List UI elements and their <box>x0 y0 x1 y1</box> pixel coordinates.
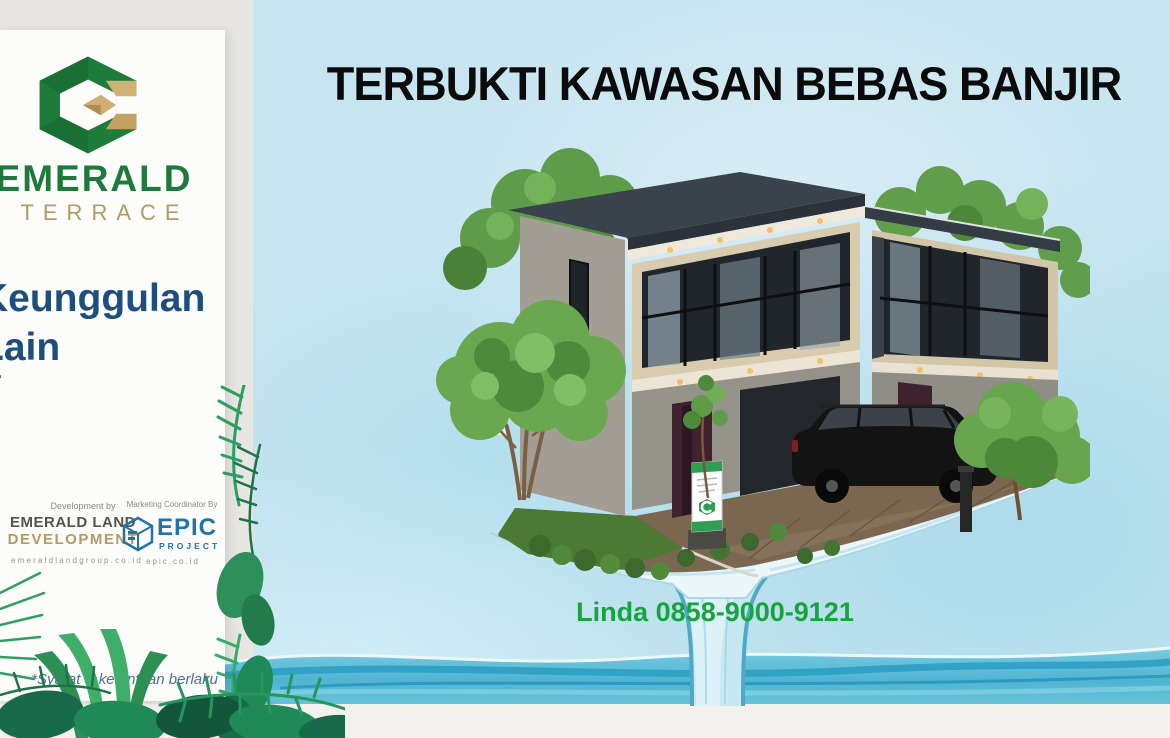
project-signboard <box>688 461 726 550</box>
sidebar-heading-line2: Lain <box>0 324 215 373</box>
marketing-brand: EPIC <box>157 514 217 542</box>
sidebar-heading: Keunggulan Lain <box>0 275 215 373</box>
flyer-canvas: TERBUKTI KAWASAN BEBAS BANJIR Linda 0858… <box>0 0 1170 738</box>
epic-logo-icon <box>121 516 155 552</box>
cropped-list-marker: - <box>0 362 2 390</box>
emerald-logo-icon <box>24 54 152 156</box>
contact-phone: Linda 0858-9000-9121 <box>520 597 910 628</box>
brand-subname: TERRACE <box>2 200 207 226</box>
tropical-leaves-bottom-left <box>0 555 345 738</box>
brand-name: EMERALD <box>0 158 204 200</box>
sidebar-heading-line1: Keunggulan <box>0 275 215 324</box>
main-headline: TERBUKTI KAWASAN BEBAS BANJIR <box>305 56 1142 111</box>
